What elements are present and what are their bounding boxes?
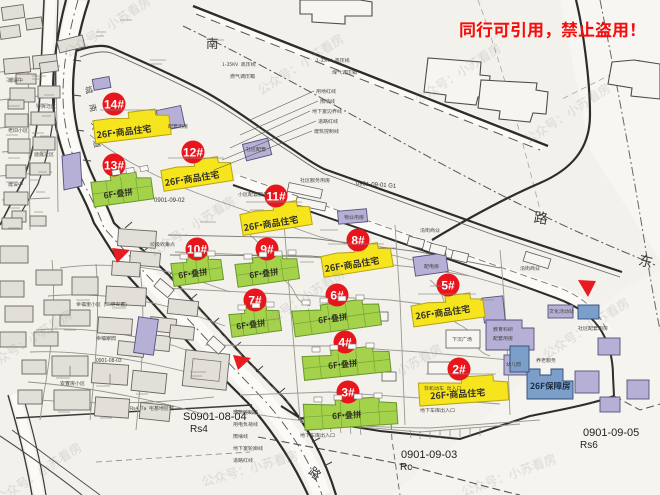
svg-text:Rc: Rc — [400, 462, 412, 473]
svg-text:0901-09-03: 0901-09-03 — [401, 449, 457, 461]
svg-text:Rs4: Rs4 — [190, 424, 208, 435]
svg-text:8#: 8# — [351, 234, 365, 248]
svg-text:11#: 11# — [266, 190, 286, 204]
svg-text:0901-08-03: 0901-08-03 — [96, 358, 122, 364]
svg-text:5#: 5# — [441, 279, 455, 293]
svg-text:12#: 12# — [183, 146, 203, 160]
svg-text:0901-09-02: 0901-09-02 — [154, 198, 185, 204]
svg-text:14#: 14# — [104, 98, 124, 112]
svg-text:Rs6: Rs6 — [580, 440, 598, 451]
svg-text:S0901-08-04: S0901-08-04 — [183, 411, 247, 423]
svg-text:0901-09-05: 0901-09-05 — [583, 427, 639, 439]
svg-text:3#: 3# — [341, 386, 355, 400]
